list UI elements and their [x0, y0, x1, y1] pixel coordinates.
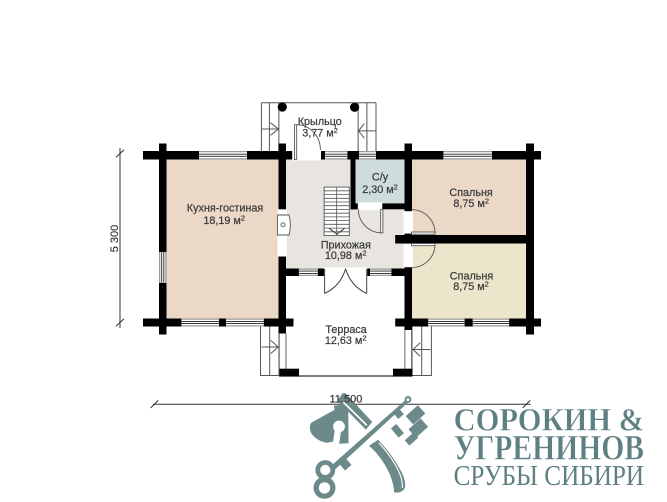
svg-text:10,98 м2: 10,98 м2 — [325, 249, 367, 263]
svg-text:11.500: 11.500 — [329, 393, 362, 405]
svg-text:СРУБЫ СИБИРИ: СРУБЫ СИБИРИ — [454, 461, 644, 492]
svg-text:Кухня-гостиная: Кухня-гостиная — [187, 202, 264, 214]
svg-text:8,75 м2: 8,75 м2 — [453, 196, 489, 210]
svg-text:2,30 м2: 2,30 м2 — [362, 182, 398, 196]
svg-text:5 300: 5 300 — [109, 225, 121, 253]
svg-text:12,63 м2: 12,63 м2 — [325, 334, 367, 348]
svg-text:8,75 м2: 8,75 м2 — [453, 279, 489, 293]
svg-text:3,77 м2: 3,77 м2 — [302, 126, 338, 140]
svg-text:18,19 м2: 18,19 м2 — [203, 213, 245, 227]
svg-text:С/у: С/у — [372, 171, 389, 183]
svg-text:Терраса: Терраса — [325, 324, 366, 336]
